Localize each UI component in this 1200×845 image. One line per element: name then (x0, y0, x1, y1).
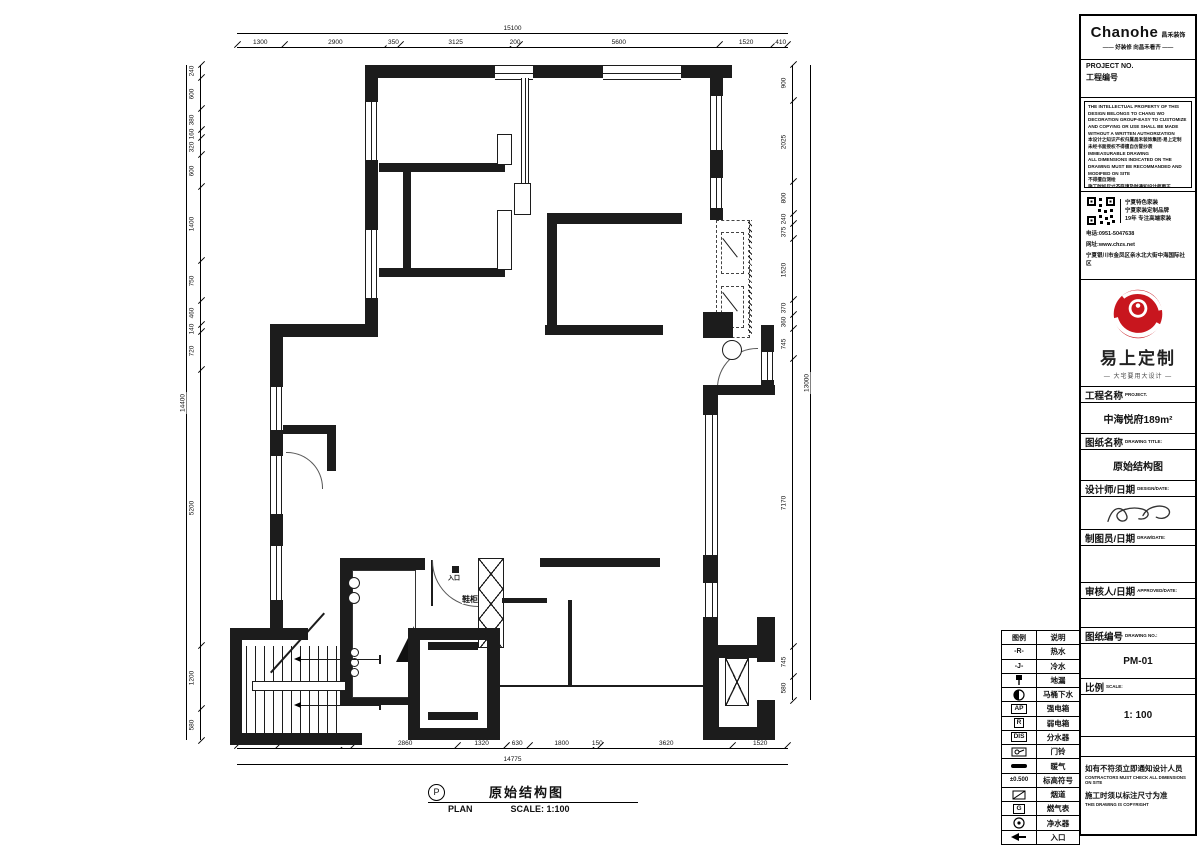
wall-segment (270, 430, 283, 456)
wall-segment (230, 628, 242, 745)
designer-label: 设计师/日期 DESIGN/DATE: (1081, 481, 1195, 497)
wall-segment (757, 700, 775, 740)
plan-mark: P (428, 784, 445, 801)
entry-icon (452, 566, 459, 573)
dimension-value: 1200 (189, 670, 196, 684)
qr-code (1086, 196, 1116, 226)
window-box (497, 134, 512, 165)
dimension-value: 2900 (327, 39, 343, 46)
notice-line: ALL DIMENSIONS INDICATED ON THE (1088, 157, 1188, 164)
dimension-value: 5600 (611, 39, 627, 46)
wall-segment (533, 65, 603, 78)
dim-total-bottom-value: 14775 (501, 756, 523, 763)
wall-segment (540, 558, 660, 567)
dimension-value: 600 (189, 88, 196, 99)
dimension-value: 630 (511, 740, 524, 747)
wall-segment (403, 172, 411, 268)
contact-block: 宁夏特色家装 宁夏家装定制品牌 19年 专注高端家装 电话:0951-50476… (1081, 192, 1195, 280)
approver-label: 审核人/日期 APPROVED/DATE: (1081, 583, 1195, 599)
company-name-cn: 昌禾装饰 (1161, 30, 1185, 39)
copyright-notice: THE INTELLECTUAL PROPERTY OF THISDESIGN … (1081, 98, 1195, 192)
elevator-door (428, 642, 478, 650)
dimension-total-right: 13000 (810, 65, 811, 700)
wall-segment (270, 324, 378, 337)
red-swirl-logo (1110, 286, 1166, 342)
stair-arrow-line (300, 659, 380, 660)
window-box (514, 183, 531, 215)
notice-line: AND COPYING OR USE SHALL BE MADE (1088, 124, 1188, 131)
phone: 电话:0951-5047638 (1086, 229, 1190, 237)
door-arc (286, 452, 323, 489)
entrance-arrow-icon (1002, 831, 1037, 844)
wall-segment (230, 733, 362, 745)
dim-total-right-value: 13000 (804, 371, 811, 393)
shoe-cabinet-label: 鞋柜 (462, 596, 478, 604)
stair-arrow-line (300, 705, 380, 706)
wall-segment (270, 337, 283, 387)
dimension-value: 380 (189, 114, 196, 125)
legend-row: ±0.500 标高符号 (1002, 773, 1079, 787)
stair-arrow-end (379, 701, 381, 710)
project-no-block: PROJECT NO. 工程编号 (1081, 60, 1195, 98)
window (705, 415, 718, 555)
drafter-value (1081, 546, 1195, 583)
window (705, 583, 718, 617)
legend-header-label: 说明 (1037, 632, 1079, 643)
dimension-value: 720 (189, 346, 196, 357)
legend-header-symbol: 图例 (1002, 631, 1037, 644)
dimension-value: 2860 (397, 740, 413, 747)
dim-total-top-value: 15100 (501, 25, 523, 32)
dimension-value: 745 (781, 339, 788, 350)
dimension-total-bottom: 14775 (237, 764, 788, 765)
dimension-chain-top: 13002900350312520056001520410 (237, 47, 788, 48)
wall-segment (365, 65, 495, 78)
dimension-value: 140 (189, 323, 196, 334)
plan-caption: P 原始结构图 PLAN SCALE: 1:100 (428, 782, 638, 814)
wall-segment (365, 160, 378, 230)
window (270, 456, 282, 514)
project-name-label: 工程名称 PROJECT. (1081, 387, 1195, 403)
dimension-value: 1520 (752, 740, 768, 747)
dimension-value: 460 (189, 307, 196, 318)
brand-tagline: —— 好装修 向昌禾看齐 —— (1103, 43, 1174, 51)
legend-row: -R- 热水 (1002, 644, 1079, 658)
legend-row: G 燃气表 (1002, 801, 1079, 815)
dimension-value: 3125 (447, 39, 463, 46)
footer-notes: 如有不符须立即通知设计人员 CONTRACTORS MUST CHECK ALL… (1081, 757, 1195, 834)
dimension-total-top: 15100 (237, 33, 788, 34)
dimension-chain-right: 900202580024037515203703607457170745580 (792, 65, 793, 700)
dimension-value: 1520 (781, 262, 788, 276)
pipe-circle (350, 648, 359, 657)
column-circle (722, 340, 742, 360)
window (270, 387, 282, 430)
dimension-value: 160 (189, 128, 196, 139)
wall-segment (379, 163, 505, 172)
wall-segment (710, 208, 723, 220)
window (270, 546, 282, 600)
dimension-value: 1320 (473, 740, 489, 747)
floor-drain-icon (1002, 674, 1037, 687)
legend-row: 入口 (1002, 830, 1079, 844)
dimension-total-left: 14400 (186, 65, 187, 740)
title-block: Chanohe 昌禾装饰 —— 好装修 向昌禾看齐 —— PROJECT NO.… (1079, 14, 1197, 836)
window (710, 96, 722, 150)
meter-circle (348, 592, 360, 604)
flue-icon (1002, 788, 1037, 801)
dimension-value: 1300 (252, 39, 268, 46)
wall-segment (710, 150, 723, 178)
legend-row: -J- 冷水 (1002, 659, 1079, 673)
legend-header-row: 图例 说明 (1002, 631, 1079, 644)
wall-segment (487, 628, 500, 740)
dimension-value: 1520 (738, 39, 754, 46)
approver-value (1081, 599, 1195, 628)
wall-line (500, 685, 705, 687)
dimension-value: 800 (781, 193, 788, 204)
notice-line: 不得擅自测绘 (1088, 177, 1188, 184)
dimension-value: 7170 (781, 496, 788, 510)
drafter-label: 制图员/日期 DRAW/DATE: (1081, 530, 1195, 546)
stair-tread (246, 646, 247, 733)
dimension-value: 360 (781, 317, 788, 328)
legend-row: DIS 分水器 (1002, 730, 1079, 744)
scale-label: 比例 SCALE: (1081, 679, 1195, 695)
notice-line: 未经书面授权不得擅自仿冒抄袭 (1088, 144, 1188, 151)
drawing-sheet: { "brand": { "logo_text": "Chanohe", "lo… (0, 0, 1200, 844)
toilet-drain-icon (1002, 688, 1037, 701)
wall-segment (703, 555, 718, 583)
manifold-symbol: DIS (1011, 732, 1028, 742)
wall-segment (408, 628, 420, 740)
entry-label: 入口 (448, 576, 460, 582)
hatch-strip (748, 220, 752, 336)
hot-water-symbol: -R- (1002, 645, 1037, 658)
dimension-value: 580 (189, 719, 196, 730)
legend-row: 净水器 (1002, 815, 1079, 829)
stair-arrow-head (294, 702, 301, 708)
empty-row (1081, 737, 1195, 757)
plan-title-en: PLAN (448, 804, 473, 814)
floor-plan: 15100 13002900350312520056001520410 1130… (0, 0, 1000, 844)
meter-circle (348, 577, 360, 589)
wall-segment (761, 380, 774, 394)
designer-signature (1081, 497, 1195, 530)
doorbell-icon (1002, 745, 1037, 758)
legend-row: 马桶下水 (1002, 687, 1079, 701)
wall-segment (547, 213, 682, 224)
wall-segment (365, 78, 378, 102)
drawing-no-label: 图纸编号 DRAWING NO.: (1081, 628, 1195, 644)
window (761, 352, 773, 380)
dimension-value: 240 (189, 66, 196, 77)
drawing-title-label: 图纸名称 DRAWING TITLE: (1081, 434, 1195, 450)
dimension-value: 745 (781, 656, 788, 667)
dimension-value: 750 (189, 275, 196, 286)
red-brand-name: 易上定制 (1100, 344, 1176, 369)
flue-box (725, 658, 749, 706)
power-box-symbol: AP (1011, 704, 1026, 714)
wall-segment (545, 325, 663, 335)
window-box (497, 210, 512, 270)
weak-current-box-symbol: R (1014, 718, 1025, 728)
dimension-value: 2025 (781, 134, 788, 148)
stair-arrow-end (379, 655, 381, 664)
signature (1088, 498, 1188, 528)
wall-segment (270, 514, 283, 546)
notice-line: 施工时如尺寸不符请及时通知设计师更正 (1088, 184, 1188, 188)
dimension-value: 600 (189, 165, 196, 176)
wall-segment (568, 600, 572, 686)
wall-segment (408, 728, 500, 740)
elevation-symbol: ±0.500 (1002, 774, 1037, 787)
dimension-value: 320 (189, 141, 196, 152)
wall-segment (761, 325, 774, 352)
wall-segment (270, 600, 283, 630)
notice-line: DRAWING MUST BE RECOMMANDED AND (1088, 164, 1188, 171)
cold-water-symbol: -J- (1002, 660, 1037, 673)
elevator-door (428, 712, 478, 720)
notice-line: DECORATION GROUP-EASY TO CUSTOMIZE (1088, 117, 1188, 124)
legend-row: 地漏 (1002, 673, 1079, 687)
drawing-no-value: PM-01 (1081, 644, 1195, 679)
wall-segment (340, 558, 425, 570)
stair-handrail (252, 681, 346, 691)
notice-line: THE INTELLECTUAL PROPERTY OF THIS (1088, 104, 1188, 111)
wall-segment (547, 213, 557, 331)
plan-scale: SCALE: 1:100 (511, 804, 570, 814)
dim-total-left-value: 14400 (180, 391, 187, 413)
window (521, 78, 529, 183)
dimension-value: 240 (781, 214, 788, 225)
wall-segment (379, 268, 505, 277)
plan-title: 原始结构图 (489, 782, 564, 801)
dimension-value: 410 (774, 39, 787, 46)
window (365, 230, 377, 298)
wall-segment (681, 65, 732, 78)
notice-line: IMMEASURABLE DRAWING (1088, 151, 1188, 158)
window (603, 65, 681, 80)
legend-row: 烟道 (1002, 787, 1079, 801)
dimension-value: 1400 (189, 217, 196, 231)
notice-line: 本设计之知识产权归属昌禾装饰集团-易上定制 (1088, 137, 1188, 144)
notice-line: DESIGN BELONGS TO CHANG WO (1088, 111, 1188, 118)
scale-value: 1: 100 (1081, 695, 1195, 737)
gas-meter-symbol: G (1013, 804, 1024, 814)
red-brand-tagline: — 大宅要用大设计 — (1104, 371, 1172, 380)
brand-block: Chanohe 昌禾装饰 —— 好装修 向昌禾看齐 —— (1081, 16, 1195, 60)
dimension-value: 900 (781, 78, 788, 89)
dimension-value: 580 (781, 683, 788, 694)
drawing-title-value: 原始结构图 (1081, 450, 1195, 481)
dimension-value: 370 (781, 302, 788, 313)
window (710, 178, 722, 208)
pipe-circle (350, 668, 359, 677)
legend-table: 图例 说明 -R- 热水 -J- 冷水 地漏 马桶下水 AP 强电箱 R 弱电箱… (1001, 630, 1080, 845)
wall-segment (327, 425, 336, 471)
legend-row: 暖气 (1002, 758, 1079, 772)
heating-line-icon (1002, 759, 1037, 772)
window (365, 102, 377, 160)
radiator-bar (502, 598, 547, 603)
legend-row: R 弱电箱 (1002, 716, 1079, 730)
dimension-chain-bottom: 1130178026028601320630180015036201520 (237, 748, 788, 749)
wall-segment (703, 395, 718, 415)
kitchen-counter (352, 570, 416, 698)
website: 网址:www.chzs.net (1086, 240, 1190, 248)
wall-segment (710, 78, 723, 96)
dimension-chain-left: 2406003801603206001400750460140720520012… (200, 65, 201, 740)
legend-row: AP 强电箱 (1002, 701, 1079, 715)
legend-row: 门铃 (1002, 744, 1079, 758)
address: 宁夏银川市金凤区亲水北大街中海国际社区 (1086, 251, 1190, 267)
dimension-value: 1800 (553, 740, 569, 747)
dimension-value: 3620 (658, 740, 674, 747)
dimension-value: 5200 (189, 501, 196, 515)
red-brand-block: 易上定制 — 大宅要用大设计 — (1081, 280, 1195, 387)
project-name-value: 中海悦府189m² (1081, 403, 1195, 434)
water-purifier-icon (1002, 816, 1037, 829)
dimension-value: 375 (781, 226, 788, 237)
wall-segment (703, 312, 733, 338)
wall-segment (703, 727, 760, 740)
qr-caption: 宁夏特色家装 宁夏家装定制品牌 19年 专注高端家装 (1120, 199, 1171, 224)
company-logo: Chanohe (1091, 24, 1159, 41)
stair-arrow-head (294, 656, 301, 662)
